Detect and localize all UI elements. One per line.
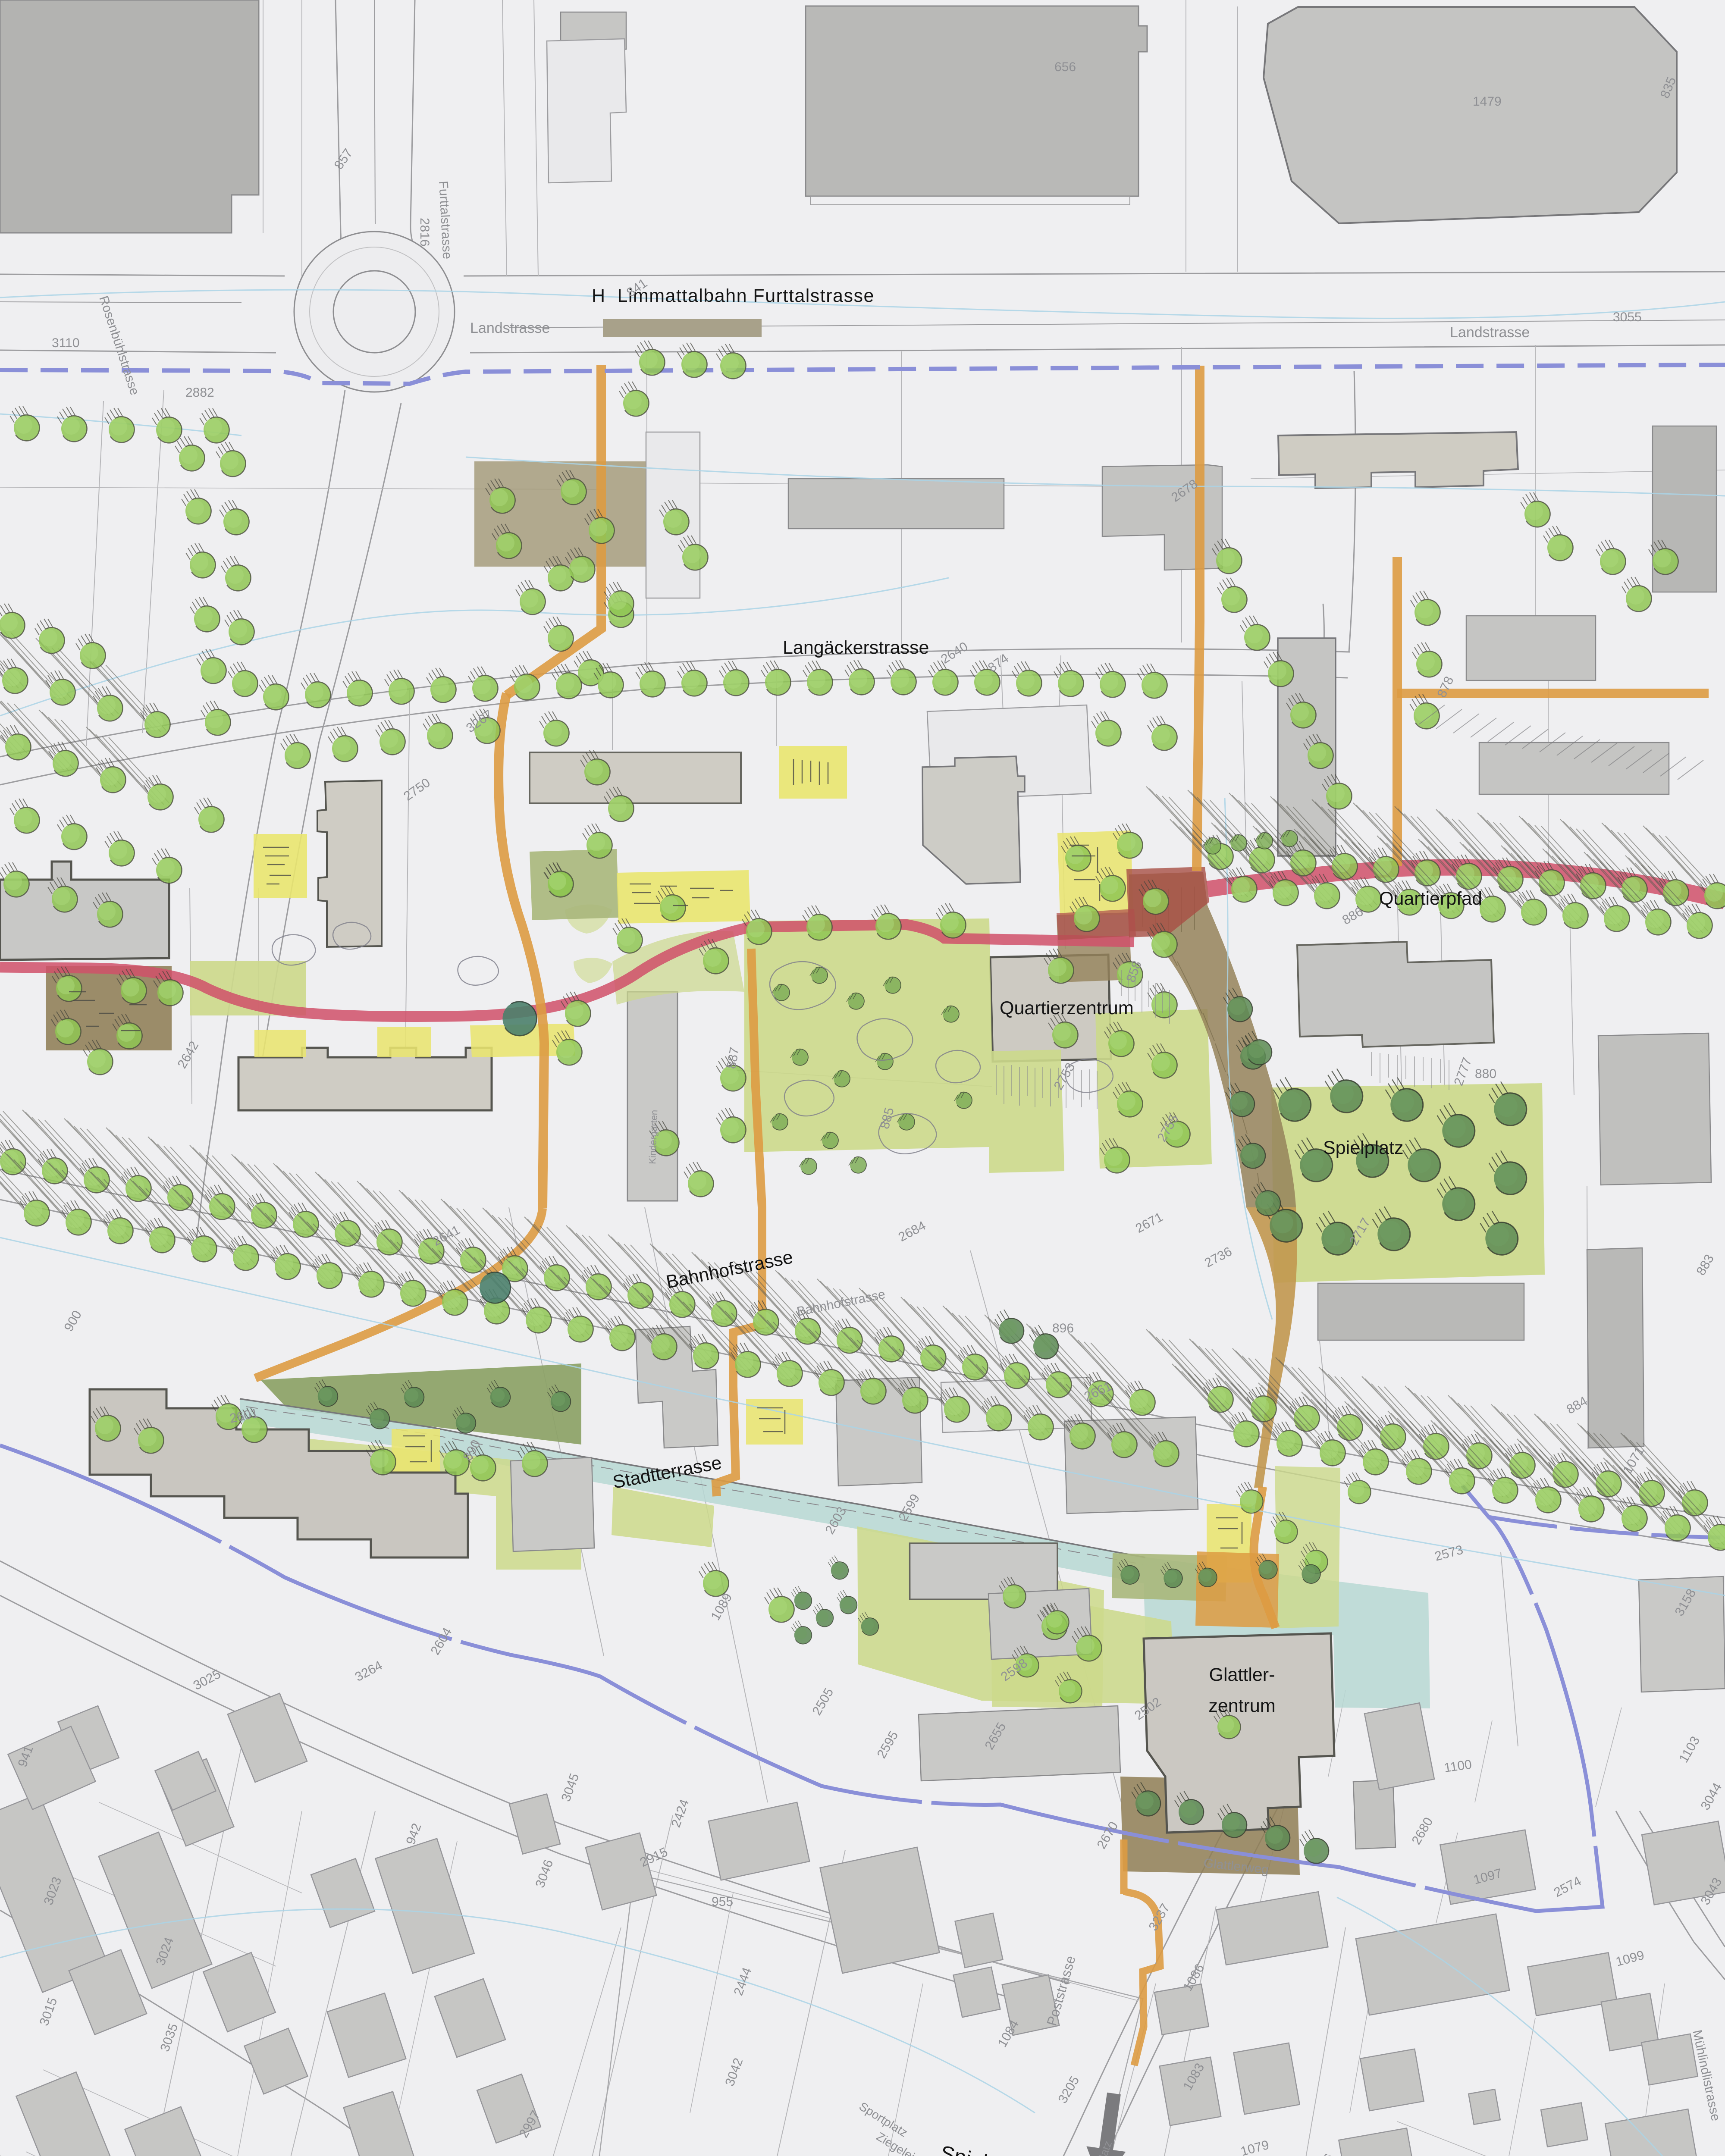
- svg-text:Landstrasse: Landstrasse: [1450, 324, 1530, 341]
- svg-text:2816: 2816: [417, 218, 432, 247]
- svg-text:Langäckerstrasse: Langäckerstrasse: [783, 637, 929, 658]
- svg-text:Spielplatz: Spielplatz: [1323, 1138, 1403, 1158]
- svg-text:896: 896: [1052, 1321, 1074, 1335]
- svg-text:Quartierzentrum: Quartierzentrum: [1000, 998, 1134, 1018]
- svg-text:Quartierpfad: Quartierpfad: [1379, 888, 1482, 909]
- svg-text:2882: 2882: [185, 385, 214, 400]
- svg-text:Kindergarten: Kindergarten: [647, 1109, 659, 1164]
- svg-text:Glattler-: Glattler-: [1209, 1664, 1275, 1685]
- svg-text:955: 955: [712, 1895, 733, 1909]
- svg-text:1479: 1479: [1473, 94, 1502, 109]
- svg-text:656: 656: [1054, 60, 1076, 74]
- svg-text:3110: 3110: [52, 336, 80, 350]
- svg-text:3055: 3055: [1613, 310, 1642, 324]
- svg-text:880: 880: [1475, 1067, 1496, 1081]
- svg-text:zentrum: zentrum: [1208, 1695, 1275, 1716]
- svg-text:Landstrasse: Landstrasse: [470, 320, 550, 336]
